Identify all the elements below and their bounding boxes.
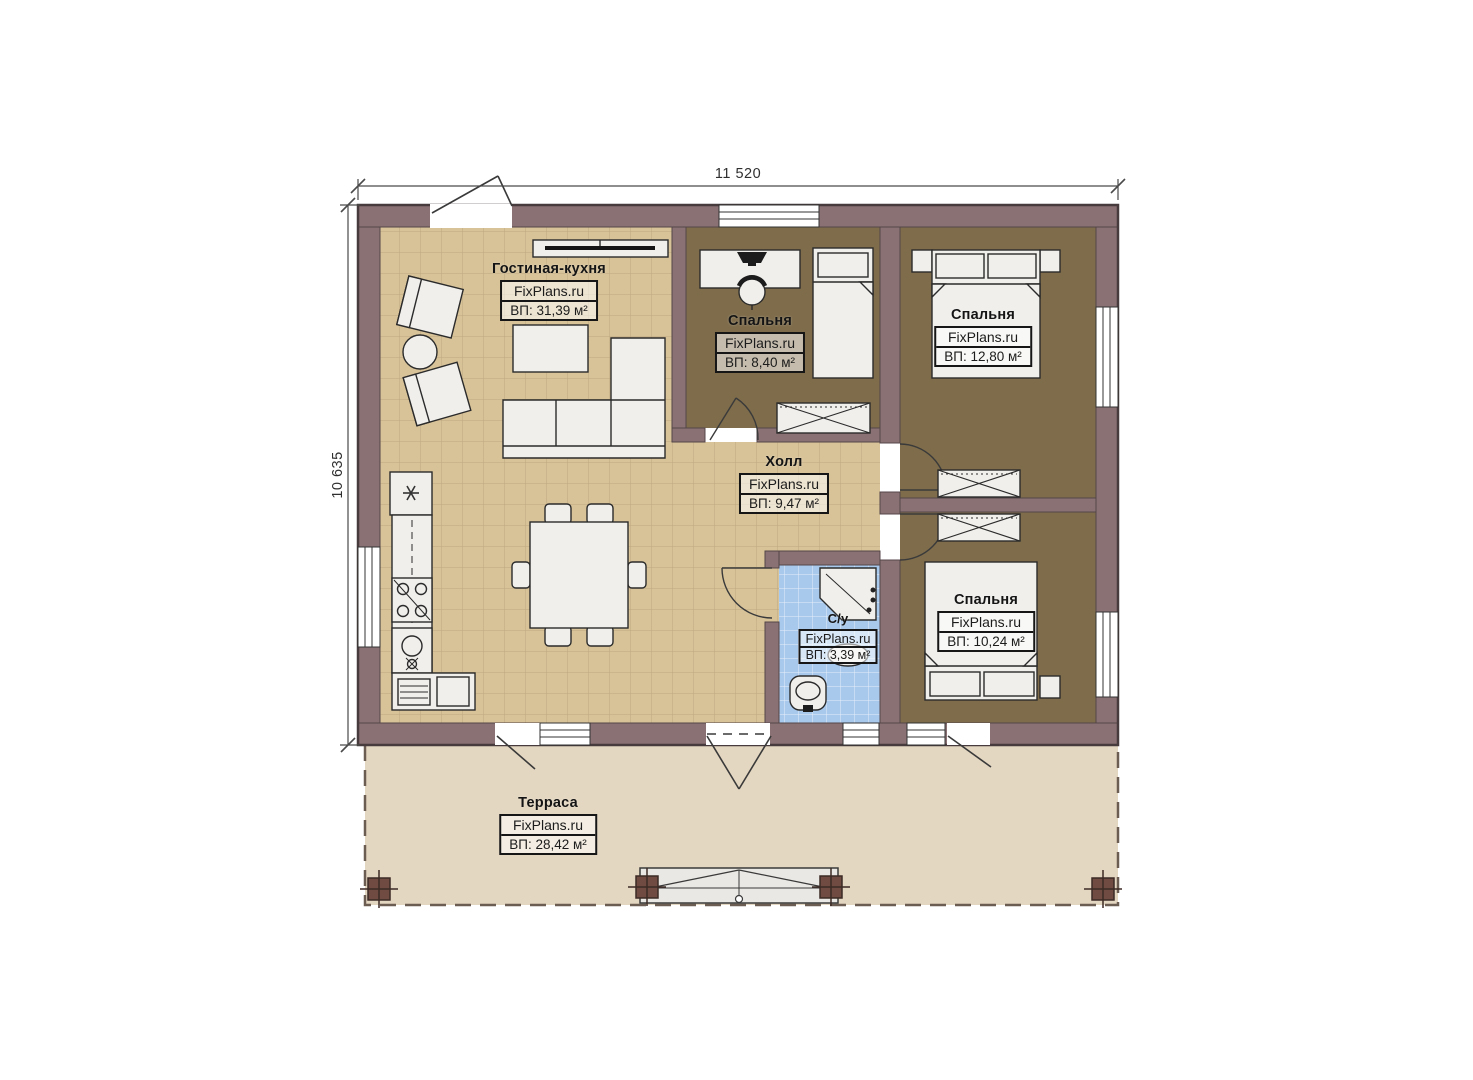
floor-plan: 11 520 10 635 Гостиная-кухня FixPlans.ru…: [0, 0, 1473, 1080]
terrace-area: [360, 745, 1122, 908]
room-name: Терраса: [499, 795, 597, 811]
toilet: [790, 676, 826, 712]
floor-plan-svg: [0, 0, 1473, 1080]
room-label-bathroom: С/у FixPlans.ru ВП: 3,39 м²: [798, 611, 877, 664]
watermark: FixPlans.ru: [939, 613, 1033, 631]
room-label-bedroom-bottom: Спальня FixPlans.ru ВП: 10,24 м²: [937, 592, 1035, 652]
coffee-table: [513, 325, 588, 372]
window: [907, 723, 945, 745]
window: [843, 723, 879, 745]
stove: [392, 578, 432, 622]
room-label-terrace: Терраса FixPlans.ru ВП: 28,42 м²: [499, 795, 597, 855]
single-bed: [813, 248, 873, 378]
tv-console: [533, 240, 668, 257]
room-name: Гостиная-кухня: [492, 261, 606, 277]
room-label-living: Гостиная-кухня FixPlans.ru ВП: 31,39 м²: [492, 261, 606, 321]
window: [358, 547, 380, 647]
room-area: ВП: 12,80 м²: [936, 346, 1030, 365]
watermark: FixPlans.ru: [741, 475, 827, 493]
window: [1096, 307, 1118, 407]
room-name: Спальня: [937, 592, 1035, 608]
dining-table: [512, 504, 646, 646]
room-label-bedroom-right: Спальня FixPlans.ru ВП: 12,80 м²: [934, 307, 1032, 367]
watermark: FixPlans.ru: [717, 334, 803, 352]
fridge: [390, 472, 432, 515]
nightstand: [912, 250, 932, 272]
terrace-door-opening: [947, 723, 990, 745]
room-label-hall: Холл FixPlans.ru ВП: 9,47 м²: [739, 454, 829, 514]
sink: [392, 628, 432, 673]
round-table: [403, 335, 437, 369]
room-name: Спальня: [934, 307, 1032, 323]
watermark: FixPlans.ru: [501, 816, 595, 834]
room-info-box: FixPlans.ru ВП: 9,47 м²: [739, 473, 829, 514]
room-area: ВП: 3,39 м²: [800, 646, 875, 662]
room-info-box: FixPlans.ru ВП: 10,24 м²: [937, 611, 1035, 652]
room-label-bedroom-top: Спальня FixPlans.ru ВП: 8,40 м²: [715, 313, 805, 373]
room-area: ВП: 9,47 м²: [741, 493, 827, 512]
terrace-stairs: [640, 868, 838, 903]
room-info-box: FixPlans.ru ВП: 31,39 м²: [500, 280, 598, 321]
nightstand: [1040, 676, 1060, 698]
room-area: ВП: 8,40 м²: [717, 352, 803, 371]
room-area: ВП: 28,42 м²: [501, 834, 595, 853]
room-info-box: FixPlans.ru ВП: 3,39 м²: [798, 629, 877, 664]
wardrobe: [938, 514, 1020, 541]
terrace-door-opening: [495, 723, 540, 745]
nightstand: [1040, 250, 1060, 272]
wardrobe: [777, 403, 870, 433]
watermark: FixPlans.ru: [800, 631, 875, 646]
kitchen-cabinet: [392, 673, 475, 710]
room-name: Спальня: [715, 313, 805, 329]
window: [719, 205, 819, 227]
watermark: FixPlans.ru: [502, 282, 596, 300]
watermark: FixPlans.ru: [936, 328, 1030, 346]
dimension-height-label: 10 635: [330, 451, 346, 498]
room-info-box: FixPlans.ru ВП: 12,80 м²: [934, 326, 1032, 367]
room-info-box: FixPlans.ru ВП: 8,40 м²: [715, 332, 805, 373]
room-area: ВП: 10,24 м²: [939, 631, 1033, 650]
window: [540, 723, 590, 745]
room-name: С/у: [798, 611, 877, 626]
wardrobe: [938, 470, 1020, 497]
room-area: ВП: 31,39 м²: [502, 300, 596, 319]
dimension-width-label: 11 520: [715, 166, 761, 182]
window: [1096, 612, 1118, 697]
room-info-box: FixPlans.ru ВП: 28,42 м²: [499, 814, 597, 855]
room-name: Холл: [739, 454, 829, 470]
